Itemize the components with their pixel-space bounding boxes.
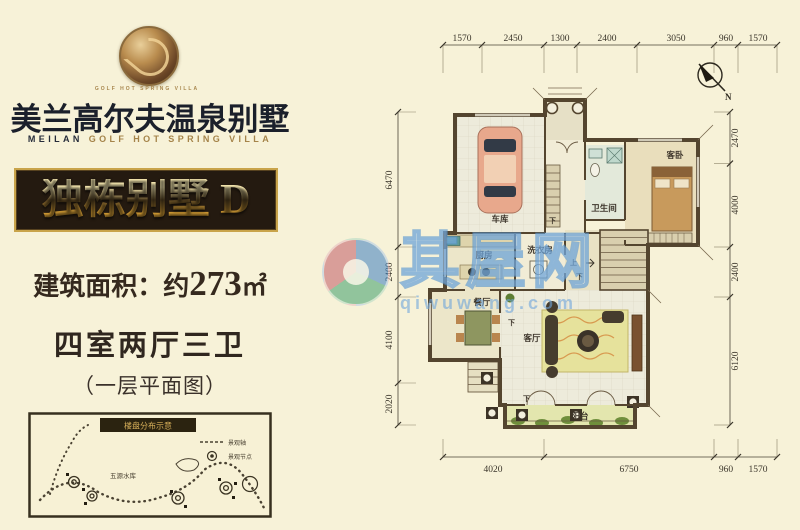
living-furniture xyxy=(542,301,642,378)
room-count-line: 四室两厅三卫 xyxy=(0,322,300,364)
medallion-swirl-icon xyxy=(123,30,177,84)
room-label-dining: 餐厅 xyxy=(472,297,491,307)
dim-label: 6120 xyxy=(731,351,741,370)
area-prefix: 建筑面积：约 xyxy=(33,271,189,301)
room-label-guest-bedroom: 客卧 xyxy=(665,150,684,160)
logo-caption: GOLF HOT SPRING VILLA xyxy=(40,86,254,92)
site-map: 楼盘分布示意 景观轴 景观节点 五源水库 xyxy=(28,412,272,518)
north-label: N xyxy=(725,92,732,102)
dim-label: 1300 xyxy=(551,34,570,44)
car-icon xyxy=(478,127,522,213)
dim-label: 4100 xyxy=(385,330,395,349)
floor-note: （一层平面图） xyxy=(0,370,300,400)
dim-label: 1570 xyxy=(453,34,472,44)
area-value: 273 xyxy=(189,264,242,303)
dim-label: 3050 xyxy=(667,34,686,44)
dim-label: 2020 xyxy=(385,394,395,413)
legend-node-dot xyxy=(210,454,214,458)
room-label-living: 客厅 xyxy=(522,333,541,343)
area-unit: ㎡ xyxy=(242,273,267,301)
building-area-line: 建筑面积：约273㎡ xyxy=(0,264,300,304)
floor-plan: 1570 2450 1300 2400 3050 960 1570 4020 6… xyxy=(380,15,790,485)
dim-label: 2470 xyxy=(731,128,741,147)
step-down-label: 下 xyxy=(523,395,530,403)
washing-machine-icon xyxy=(530,261,547,278)
dim-label: 2400 xyxy=(731,262,741,281)
step-down-label: 下 xyxy=(508,319,515,327)
room-label-kitchen: 厨房 xyxy=(475,250,492,260)
brand-medallion-icon xyxy=(119,26,179,86)
legend-axis-label: 景观轴 xyxy=(228,439,246,447)
dim-label: 4020 xyxy=(484,465,503,475)
dim-label: 2400 xyxy=(385,262,395,281)
dim-label: 6470 xyxy=(385,170,395,189)
stair-down-label: 下 xyxy=(576,273,583,281)
room-label-balcony: 阳台 xyxy=(571,411,589,421)
room-label-bathroom: 卫生间 xyxy=(591,203,617,213)
dim-label: 1570 xyxy=(749,34,768,44)
brand-subtitle: MEILAN GOLF HOT SPRING VILLA xyxy=(6,134,294,144)
stair-up-label: 上 xyxy=(570,258,577,267)
villa-type-label: 独栋别墅 D xyxy=(42,179,251,221)
villa-type-badge: 独栋别墅 D xyxy=(14,168,278,232)
dim-label: 4000 xyxy=(731,195,741,214)
dim-label: 960 xyxy=(719,465,734,475)
north-compass-icon: N xyxy=(698,63,732,102)
site-map-title: 楼盘分布示意 xyxy=(124,421,172,431)
dim-label: 960 xyxy=(719,34,734,44)
brand-title: 美兰高尔夫温泉别墅 xyxy=(6,94,294,139)
dim-label: 2450 xyxy=(504,34,523,44)
site-lake-label: 五源水库 xyxy=(110,471,137,480)
legend-node-label: 景观节点 xyxy=(228,453,252,461)
bed-icon xyxy=(652,167,692,231)
dim-label: 6750 xyxy=(620,465,639,475)
poster-page: GOLF HOT SPRING VILLA 美兰高尔夫温泉别墅 MEILAN G… xyxy=(0,0,800,530)
brand-subtitle-secondary: GOLF HOT SPRING VILLA xyxy=(83,134,272,144)
dim-label: 1570 xyxy=(749,465,768,475)
brand-subtitle-primary: MEILAN xyxy=(28,134,83,144)
room-label-laundry: 洗衣房 xyxy=(527,245,553,255)
dim-label: 2400 xyxy=(598,34,617,44)
room-label-garage: 车库 xyxy=(491,214,509,224)
step-down-label: 下 xyxy=(549,217,556,225)
